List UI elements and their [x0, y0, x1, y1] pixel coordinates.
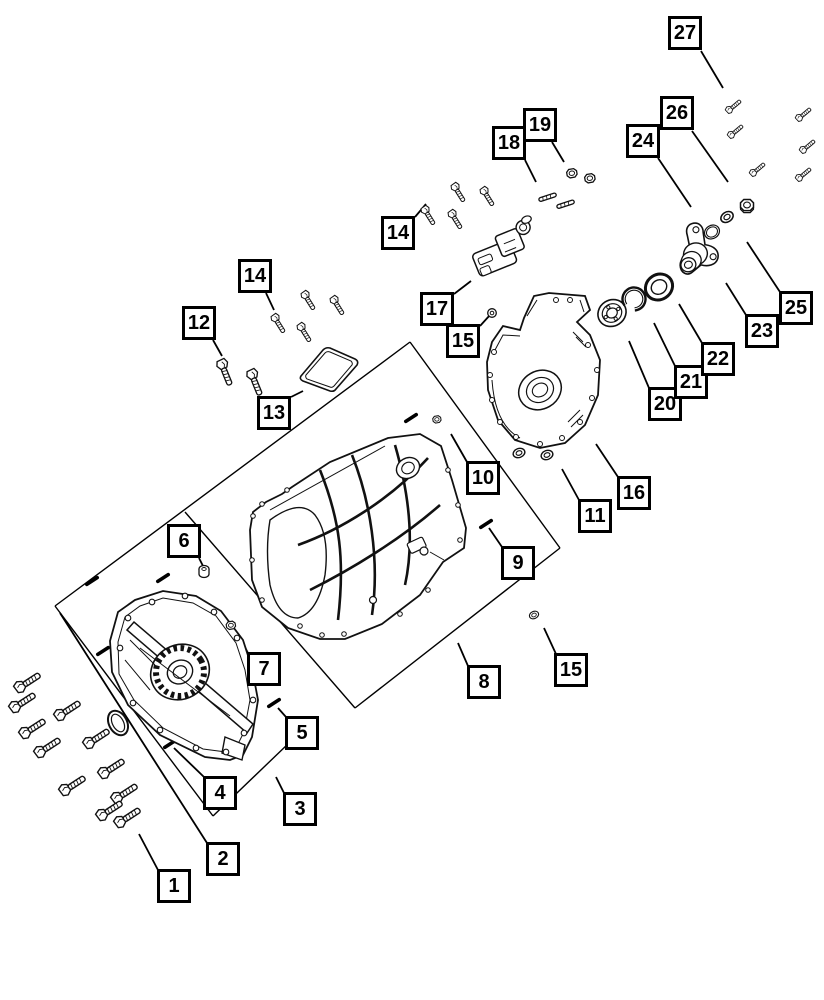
bolt-set-part-14-left	[270, 290, 347, 344]
front-case-part-4	[110, 591, 258, 760]
dash-mark	[481, 521, 491, 528]
plug-part-6	[199, 566, 209, 578]
callout-26[interactable]: 26	[660, 96, 694, 130]
cover-plate-part-13	[300, 348, 357, 392]
rear-housing-part-16	[487, 293, 600, 448]
nut-part-10	[432, 415, 441, 423]
washers-part-11	[512, 447, 554, 462]
callout-10[interactable]: 10	[466, 461, 500, 495]
callout-27[interactable]: 27	[668, 16, 702, 50]
parts-diagram-page: 1234567891011121314141515161718192021222…	[0, 0, 824, 1000]
callout-19[interactable]: 19	[523, 108, 557, 142]
callout-14T[interactable]: 14	[381, 216, 415, 250]
callout-7[interactable]: 7	[247, 652, 281, 686]
leader-line-11	[562, 469, 579, 500]
callout-3[interactable]: 3	[283, 792, 317, 826]
nut-set-part-19	[566, 168, 595, 183]
callout-15B[interactable]: 15	[554, 653, 588, 687]
leader-line-22	[679, 304, 702, 343]
callout-17[interactable]: 17	[420, 292, 454, 326]
leader-line-8	[458, 643, 468, 666]
leader-line-21	[654, 323, 675, 366]
leader-line-27	[701, 51, 723, 88]
callout-4[interactable]: 4	[203, 776, 237, 810]
leader-line-16	[596, 444, 618, 477]
leader-line-13	[291, 391, 303, 397]
callout-1[interactable]: 1	[157, 869, 191, 903]
dash-mark	[406, 415, 416, 422]
center-case-part-8	[250, 434, 466, 639]
callout-12[interactable]: 12	[182, 306, 216, 340]
callout-24[interactable]: 24	[626, 124, 660, 158]
ball-part-15-top	[488, 309, 497, 318]
leader-line-10	[451, 434, 467, 462]
nut-part-25	[741, 200, 754, 213]
leader-line-19	[552, 142, 564, 162]
callout-11[interactable]: 11	[578, 499, 612, 533]
leader-line-25	[747, 242, 780, 292]
callout-23[interactable]: 23	[745, 314, 779, 348]
dash-mark	[158, 575, 168, 582]
shift-actuator-part-17	[466, 215, 545, 277]
leader-line-1	[139, 834, 158, 870]
leader-line-24	[658, 158, 691, 207]
callout-22[interactable]: 22	[701, 342, 735, 376]
callout-2[interactable]: 2	[206, 842, 240, 876]
callout-13[interactable]: 13	[257, 396, 291, 430]
leader-line-9	[489, 528, 502, 547]
callout-15T[interactable]: 15	[446, 324, 480, 358]
leader-line-17	[454, 281, 471, 294]
washer-part-15-bottom	[528, 610, 540, 621]
callout-6[interactable]: 6	[167, 524, 201, 558]
stud-set-part-18	[538, 193, 574, 209]
bolt-set-part-14-top	[420, 182, 497, 231]
callout-18[interactable]: 18	[492, 126, 526, 160]
washer-part-25	[719, 209, 735, 224]
leader-line-23	[726, 283, 746, 315]
leader-line-15B	[544, 628, 556, 654]
exploded-view-drawing	[0, 0, 824, 1000]
leader-line-26	[692, 131, 728, 182]
leader-line-14L	[266, 293, 274, 310]
callout-5[interactable]: 5	[285, 716, 319, 750]
leader-line-15T	[480, 315, 490, 326]
bolt-set-part-26-27	[724, 98, 816, 183]
bolt-set-part-12	[215, 358, 266, 397]
callout-14L[interactable]: 14	[238, 259, 272, 293]
dash-mark	[98, 648, 108, 655]
callout-9[interactable]: 9	[501, 546, 535, 580]
leader-line-18	[525, 160, 536, 182]
callout-25[interactable]: 25	[779, 291, 813, 325]
leader-line-12	[213, 340, 222, 356]
dash-mark	[269, 700, 279, 707]
callout-8[interactable]: 8	[467, 665, 501, 699]
callout-16[interactable]: 16	[617, 476, 651, 510]
leader-line-20	[629, 341, 649, 388]
leader-line-3	[276, 777, 284, 793]
nut-part-7	[226, 621, 236, 630]
